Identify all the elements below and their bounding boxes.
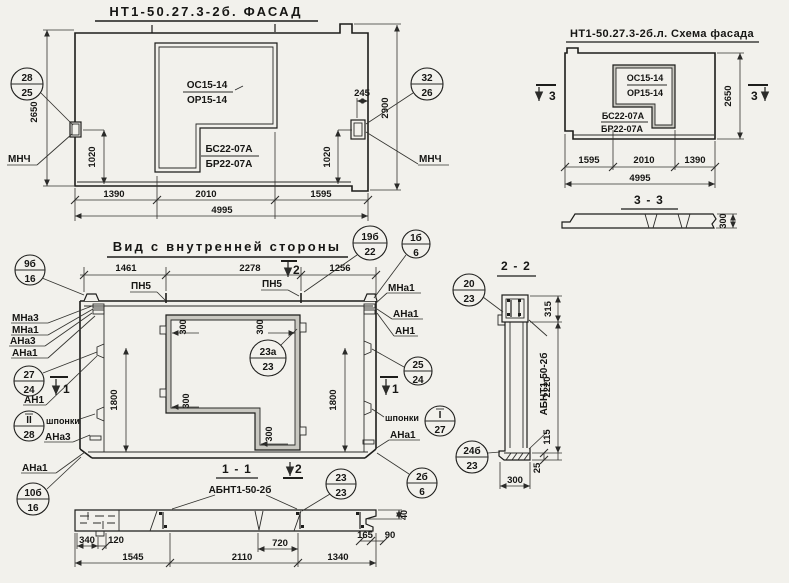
svg-text:ПН5: ПН5 xyxy=(131,281,151,292)
facade-dim-2650: 2650 xyxy=(29,30,74,186)
callout-II-28: II 28 xyxy=(14,411,44,441)
schema-title: НТ1-50.27.3-2б.л. Схема фасада xyxy=(570,28,754,40)
section-2-2-foot xyxy=(499,448,530,460)
svg-text:1595: 1595 xyxy=(310,189,332,200)
svg-text:6: 6 xyxy=(419,487,425,498)
section-3-3-dim-300: 300 xyxy=(716,213,737,228)
svg-text:МНЧ: МНЧ xyxy=(8,154,31,165)
svg-text:3: 3 xyxy=(549,89,557,103)
section-3-3-title: 3 - 3 xyxy=(634,193,664,207)
schema-window-mark-top: ОС15-14 xyxy=(627,73,664,83)
facade-dim-1020-right: 1020 xyxy=(322,130,352,184)
callout-9b-16: 9б 16 xyxy=(15,255,84,295)
section-cut-3-right: 3 xyxy=(748,85,768,103)
svg-text:23: 23 xyxy=(262,362,274,373)
callout-32-26: 32 26 xyxy=(366,68,443,124)
section-cut-1-left: 1 xyxy=(50,377,71,396)
facade-window-mark-bottom: ОР15-14 xyxy=(187,95,227,106)
svg-text:32: 32 xyxy=(421,73,433,84)
callout-23-23: 23 23 xyxy=(302,469,356,511)
callout-24b-23: 24б 23 xyxy=(456,441,500,473)
svg-text:1340: 1340 xyxy=(327,552,348,563)
svg-text:23: 23 xyxy=(466,461,478,472)
callout-28-25: 28 25 xyxy=(11,68,73,125)
svg-text:300: 300 xyxy=(264,426,274,441)
svg-text:1390: 1390 xyxy=(684,155,705,166)
inner-left-labels: МНа3 МНа1 АНа3 АНа1 xyxy=(9,306,95,359)
svg-text:2: 2 xyxy=(295,462,303,476)
svg-text:4995: 4995 xyxy=(211,205,233,216)
inner-dims-top: 1461 2278 1256 xyxy=(80,263,380,299)
svg-text:АНа3: АНа3 xyxy=(10,336,36,347)
inner-dim-1800-left: 1800 xyxy=(109,348,126,452)
svg-text:2278: 2278 xyxy=(239,263,260,274)
callout-19b-22: 19б 22 xyxy=(304,226,387,292)
svg-text:300: 300 xyxy=(718,213,728,228)
facade-dim-1020-left: 1020 xyxy=(83,130,104,184)
section-1-1-label: АБНТ1-50-2б xyxy=(209,484,272,496)
inner-dim-1800-right: 1800 xyxy=(328,348,345,452)
section-1-1-profile xyxy=(75,510,376,531)
svg-text:2900: 2900 xyxy=(380,97,391,118)
svg-text:2: 2 xyxy=(293,263,301,277)
schema-block-mark-bottom: БР22-07А xyxy=(601,124,643,134)
svg-text:23: 23 xyxy=(335,488,347,499)
panel-drawing: НТ1-50.27.3-2б. ФАСАД ОС15-14 ОР15-14 БС… xyxy=(0,0,789,583)
svg-text:1: 1 xyxy=(392,382,400,396)
svg-text:1020: 1020 xyxy=(322,146,333,167)
svg-text:I: I xyxy=(439,410,442,421)
svg-text:115: 115 xyxy=(542,429,553,445)
section-cut-2-bottom: 2 xyxy=(283,462,303,478)
svg-text:2010: 2010 xyxy=(195,189,216,200)
svg-text:АНа1: АНа1 xyxy=(22,463,48,474)
svg-text:АНа1: АНа1 xyxy=(393,309,419,320)
svg-text:1800: 1800 xyxy=(109,389,120,410)
svg-text:300: 300 xyxy=(255,319,265,334)
section-1-1-title: 1 - 1 xyxy=(222,462,252,476)
svg-text:10б: 10б xyxy=(24,487,41,499)
svg-text:23а: 23а xyxy=(260,347,277,358)
svg-text:II: II xyxy=(26,415,32,426)
svg-text:25: 25 xyxy=(532,462,543,473)
svg-text:23: 23 xyxy=(463,294,475,305)
pn5-label-1: ПН5 xyxy=(130,281,165,300)
facade-mnch-left: МНЧ xyxy=(7,134,72,165)
facade-title: НТ1-50.27.3-2б. ФАСАД xyxy=(109,4,302,19)
svg-text:ПН5: ПН5 xyxy=(262,279,282,290)
schema-block-mark-top: БС22-07А xyxy=(602,111,645,121)
svg-text:1390: 1390 xyxy=(103,189,124,200)
svg-text:2010: 2010 xyxy=(633,155,654,166)
svg-text:шпонки: шпонки xyxy=(46,416,80,426)
svg-text:720: 720 xyxy=(272,538,288,549)
facade-block-mark-top: БС22-07А xyxy=(205,144,252,155)
svg-text:16: 16 xyxy=(24,274,36,285)
svg-text:24: 24 xyxy=(412,375,424,386)
shponki-label-right: шпонки xyxy=(372,409,419,423)
svg-text:АНа1: АНа1 xyxy=(390,430,416,441)
svg-text:24б: 24б xyxy=(463,445,480,457)
pn5-label-2: ПН5 xyxy=(261,279,299,296)
section-2-2: 2 - 2 АБНТ1-50-2б 315 2220 115 25 300 20 xyxy=(453,259,562,489)
section-1-1: 1 - 1 2 АБНТ1-50-2б 340 120 1545 2110 13… xyxy=(75,462,409,567)
svg-text:2220: 2220 xyxy=(542,376,553,397)
svg-text:АНа3: АНа3 xyxy=(45,432,71,443)
svg-text:28: 28 xyxy=(21,73,33,84)
svg-text:22: 22 xyxy=(364,247,376,258)
section-1-1-dims: 340 120 1545 2110 1340 720 165 90 40 xyxy=(75,510,409,567)
facade-block-mark-bottom: БР22-07А xyxy=(206,159,253,170)
callout-20-23: 20 23 xyxy=(453,274,503,312)
section-1-1-anchors xyxy=(150,511,364,531)
svg-text:МНа1: МНа1 xyxy=(388,283,415,294)
svg-text:1800: 1800 xyxy=(328,389,339,410)
svg-text:300: 300 xyxy=(181,393,191,408)
svg-text:1020: 1020 xyxy=(87,146,98,167)
section-2-2-top-block xyxy=(498,295,528,325)
svg-text:40: 40 xyxy=(399,510,409,520)
svg-text:245: 245 xyxy=(354,88,371,99)
svg-text:165: 165 xyxy=(357,530,374,541)
svg-text:340: 340 xyxy=(79,535,95,546)
svg-text:25: 25 xyxy=(21,88,33,99)
svg-text:6: 6 xyxy=(413,248,419,259)
svg-text:300: 300 xyxy=(507,475,523,486)
svg-text:20: 20 xyxy=(463,279,475,290)
svg-text:1545: 1545 xyxy=(122,552,144,563)
svg-text:2б: 2б xyxy=(416,471,428,483)
callout-25-24: 25 24 xyxy=(372,349,432,386)
ana1-label-bottom-right: АНа1 xyxy=(375,430,420,449)
svg-text:2650: 2650 xyxy=(723,85,734,106)
svg-text:АН1: АН1 xyxy=(395,326,415,337)
svg-text:3: 3 xyxy=(751,89,759,103)
svg-text:1461: 1461 xyxy=(115,263,137,274)
section-3-3-profile xyxy=(562,214,716,228)
ana3-label-bottom-left: АНа3 xyxy=(44,432,90,443)
schema-dim-2650: 2650 xyxy=(717,53,744,139)
svg-text:АН1: АН1 xyxy=(24,395,44,406)
callout-I-27: I 27 xyxy=(425,406,455,436)
facade-dim-2900: 2900 xyxy=(354,24,401,190)
svg-text:МНа3: МНа3 xyxy=(12,313,39,324)
section-2-2-title: 2 - 2 xyxy=(501,259,531,273)
svg-text:2650: 2650 xyxy=(29,101,40,122)
svg-text:1: 1 xyxy=(63,382,71,396)
svg-text:120: 120 xyxy=(108,535,124,546)
svg-text:АНа1: АНа1 xyxy=(12,348,38,359)
section-3-3: 3 - 3 300 xyxy=(562,193,737,229)
facade-mnch-right: МНЧ xyxy=(366,132,449,165)
ana1-label-bottom-left: АНа1 xyxy=(21,452,85,474)
facade-view: НТ1-50.27.3-2б. ФАСАД ОС15-14 ОР15-14 БС… xyxy=(7,4,449,221)
svg-text:16: 16 xyxy=(27,503,39,514)
schema-window-mark-bottom: ОР15-14 xyxy=(627,88,663,98)
callout-2b-6: 2б 6 xyxy=(377,453,437,498)
svg-text:27: 27 xyxy=(23,370,35,381)
svg-text:27: 27 xyxy=(434,425,446,436)
shponki-label-left: шпонки xyxy=(46,414,95,426)
facade-window-mark-top: ОС15-14 xyxy=(187,80,228,91)
schema-view: НТ1-50.27.3-2б.л. Схема фасада ОС15-14 О… xyxy=(536,28,768,188)
svg-text:19б: 19б xyxy=(361,231,378,243)
svg-text:4995: 4995 xyxy=(629,173,651,184)
svg-text:25: 25 xyxy=(412,360,424,371)
svg-text:300: 300 xyxy=(178,319,188,334)
svg-text:шпонки: шпонки xyxy=(385,413,419,423)
inner-right-labels: МНа1 АНа1 АН1 xyxy=(376,283,423,337)
svg-text:28: 28 xyxy=(23,430,35,441)
section-cut-1-right: 1 xyxy=(380,377,400,396)
svg-text:1б: 1б xyxy=(410,232,422,244)
svg-text:26: 26 xyxy=(421,88,433,99)
inner-title: Вид с внутренней стороны xyxy=(113,239,341,254)
facade-anchor-right xyxy=(351,120,365,139)
blueprint-sheet: НТ1-50.27.3-2б. ФАСАД ОС15-14 ОР15-14 БС… xyxy=(0,0,789,583)
section-cut-3-left: 3 xyxy=(536,85,557,103)
section-1-1-hatch xyxy=(80,512,115,536)
section-2-2-shaft xyxy=(505,322,527,448)
svg-text:9б: 9б xyxy=(24,258,36,270)
svg-text:1595: 1595 xyxy=(578,155,600,166)
svg-text:315: 315 xyxy=(543,300,554,317)
svg-text:23: 23 xyxy=(335,473,347,484)
svg-text:МНЧ: МНЧ xyxy=(419,154,442,165)
svg-text:МНа1: МНа1 xyxy=(12,325,39,336)
svg-text:90: 90 xyxy=(385,530,396,541)
svg-text:2110: 2110 xyxy=(232,552,253,563)
